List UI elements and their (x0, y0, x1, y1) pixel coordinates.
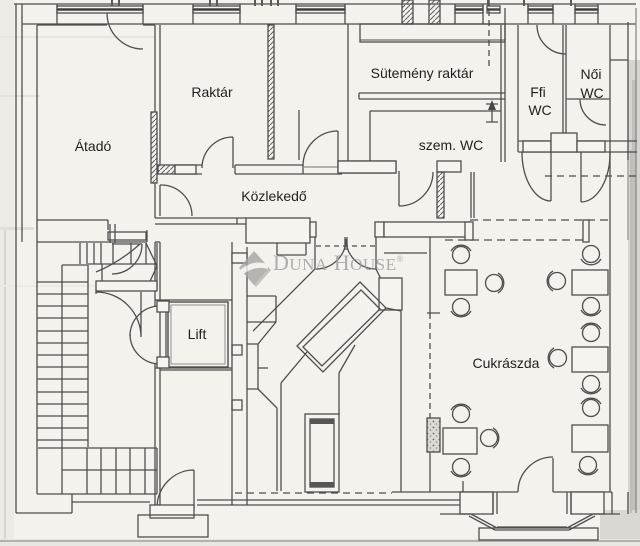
svg-text:szem. WC: szem. WC (419, 137, 484, 153)
svg-text:Sütemény raktár: Sütemény raktár (371, 65, 474, 81)
svg-text:Cukrászda: Cukrászda (473, 355, 540, 371)
svg-text:WC: WC (528, 102, 551, 118)
svg-text:Ffi: Ffi (530, 84, 546, 100)
svg-text:Raktár: Raktár (191, 84, 233, 100)
svg-text:Közlekedő: Közlekedő (241, 188, 307, 204)
svg-text:Lift: Lift (188, 326, 207, 342)
svg-text:Átadó: Átadó (75, 138, 112, 154)
svg-text:Női: Női (580, 66, 601, 82)
svg-text:WC: WC (580, 85, 603, 101)
